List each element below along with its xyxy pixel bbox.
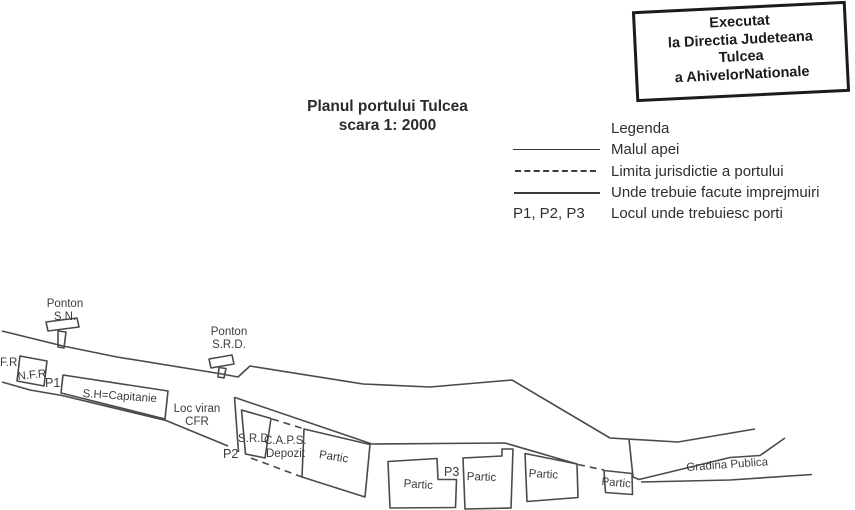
partic5-label: Partic xyxy=(601,476,631,492)
caps-dashed-top xyxy=(272,419,303,429)
map-title-line1: Planul portului Tulcea xyxy=(280,97,495,116)
shoreline-path xyxy=(2,331,755,442)
ponton-srd-label: Ponton S.R.D. xyxy=(199,326,259,352)
map-title: Planul portului Tulcea scara 1: 2000 xyxy=(280,97,495,135)
caps-depozit-label: C.A.P.S. Depozit xyxy=(264,435,307,461)
partic3-label: Partic xyxy=(467,471,497,485)
shore-connector-path xyxy=(629,439,633,477)
fr-label: F.R xyxy=(0,357,17,370)
legend-symbol-jurisdiction xyxy=(515,170,596,172)
legend-heading: Legenda xyxy=(611,121,669,137)
legend-symbol-shoreline xyxy=(513,149,600,150)
ponton-sn-label: Ponton S.N. xyxy=(37,298,93,324)
legend: Legenda Malul apei Limita jurisdictie a … xyxy=(505,115,855,227)
legend-label-shoreline: Malul apei xyxy=(611,142,679,158)
legend-symbol-fence xyxy=(514,192,600,194)
partic4-label: Partic xyxy=(528,468,558,483)
archive-stamp: Executat la Directia Judeteana Tulcea a … xyxy=(632,1,850,102)
gradina-lower-edge xyxy=(641,475,812,483)
map-title-scale: scara 1: 2000 xyxy=(280,116,495,135)
partic2-label: Partic xyxy=(403,478,433,493)
jurisdiction-dashed-segment xyxy=(578,465,604,471)
legend-label-gates: Locul unde trebuiesc porti xyxy=(611,206,783,222)
p1-label: P1 xyxy=(45,377,60,390)
p3-label: P3 xyxy=(444,466,459,479)
loc-viran-label: Loc viran CFR xyxy=(172,403,222,429)
legend-label-jurisdiction: Limita jurisdictie a portului xyxy=(611,164,784,180)
legend-label-fence: Unde trebuie facute imprejmuiri xyxy=(611,185,819,201)
p2-label: P2 xyxy=(223,448,238,461)
legend-symbol-gates: P1, P2, P3 xyxy=(513,206,585,222)
